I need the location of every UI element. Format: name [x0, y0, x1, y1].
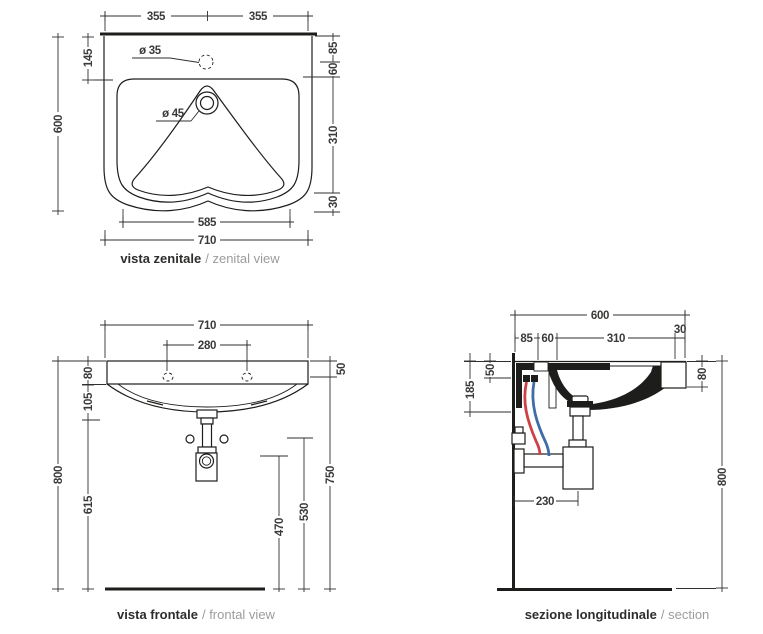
wall-flange [514, 449, 524, 473]
zenital-dimension-labels: 355 355 145 600 85 60 310 30 585 710 ø 3… [53, 11, 340, 247]
dim-sec-30: 30 [674, 324, 686, 336]
section-sink-profile [515, 362, 686, 411]
zenital-view: 355 355 145 600 85 60 310 30 585 710 ø 3… [52, 11, 340, 266]
washbasin-technical-drawing: 355 355 145 600 85 60 310 30 585 710 ø 3… [0, 0, 763, 634]
dim-right-50: 50 [336, 363, 348, 375]
dim-holes-span: 280 [198, 340, 216, 352]
dim-bottom-inner: 585 [198, 217, 217, 229]
dim-right-1: 85 [328, 41, 340, 54]
dim-left-105: 105 [83, 392, 95, 411]
frontal-sink-outline [107, 361, 308, 412]
section-drain-trap [512, 396, 593, 489]
mount-hole-right [242, 373, 252, 381]
section-caption: sezione longitudinale/ section [525, 607, 710, 622]
drain-hole-inner [201, 97, 214, 110]
zenital-caption: vista zenitale/ zenital view [120, 251, 280, 266]
dim-sec-80: 80 [697, 368, 709, 380]
hot-pipe-fitting [523, 375, 530, 382]
waste-pipe [524, 454, 563, 467]
frontal-drain-trap [186, 410, 228, 481]
front-rim-edge [661, 362, 686, 388]
frontal-caption: vista frontale/ frontal view [117, 607, 276, 622]
zenital-sink-outline [100, 34, 317, 211]
dim-right-3: 310 [328, 126, 340, 144]
drawing-canvas: 355 355 145 600 85 60 310 30 585 710 ø 3… [0, 0, 763, 634]
dim-top-right: 355 [249, 11, 268, 23]
cold-water-pipe [533, 382, 549, 456]
dim-width-total: 710 [198, 320, 216, 332]
section-view: 600 85 60 310 30 50 185 80 800 230 sezio… [464, 310, 729, 622]
dim-right-750: 750 [325, 466, 337, 484]
supply-pipes [523, 375, 549, 456]
dim-right-2: 60 [328, 63, 340, 75]
drain-hole-label: ø 45 [162, 108, 185, 120]
frontal-view: 710 280 80 105 615 800 50 750 530 470 vi… [52, 320, 348, 622]
dim-sec-230: 230 [536, 496, 554, 508]
dim-sec-85: 85 [520, 333, 533, 345]
zenital-dimension-lines [52, 11, 340, 246]
dim-left-80: 80 [83, 367, 95, 379]
mount-hole-left [163, 373, 173, 381]
drain-hole-outer [196, 92, 218, 114]
dim-sec-185: 185 [465, 380, 477, 399]
shutoff-valve [512, 433, 525, 444]
dim-530: 530 [299, 503, 311, 521]
dim-left-800: 800 [53, 466, 65, 484]
cold-pipe-fitting [531, 375, 538, 382]
dim-470: 470 [274, 518, 286, 536]
dim-sec-310: 310 [607, 333, 625, 345]
dim-right-4: 30 [328, 196, 340, 208]
faucet-hole-label: ø 35 [139, 45, 162, 57]
dim-bottom-total: 710 [198, 235, 216, 247]
dim-sec-50: 50 [485, 364, 497, 376]
dim-left-inner: 145 [83, 48, 95, 67]
dim-sec-800: 800 [717, 468, 729, 486]
faucet-hole [199, 55, 213, 69]
dim-left-total: 600 [53, 115, 65, 133]
supply-outlet-left [186, 435, 194, 443]
dim-sec-60: 60 [541, 333, 553, 345]
supply-outlet-right [220, 435, 228, 443]
dim-top-left: 355 [147, 11, 166, 23]
frontal-dimension-labels: 710 280 80 105 615 800 50 750 530 470 [53, 320, 348, 536]
dim-depth-total: 600 [591, 310, 609, 322]
dim-left-615: 615 [83, 495, 95, 514]
section-dimension-lines [464, 310, 728, 592]
